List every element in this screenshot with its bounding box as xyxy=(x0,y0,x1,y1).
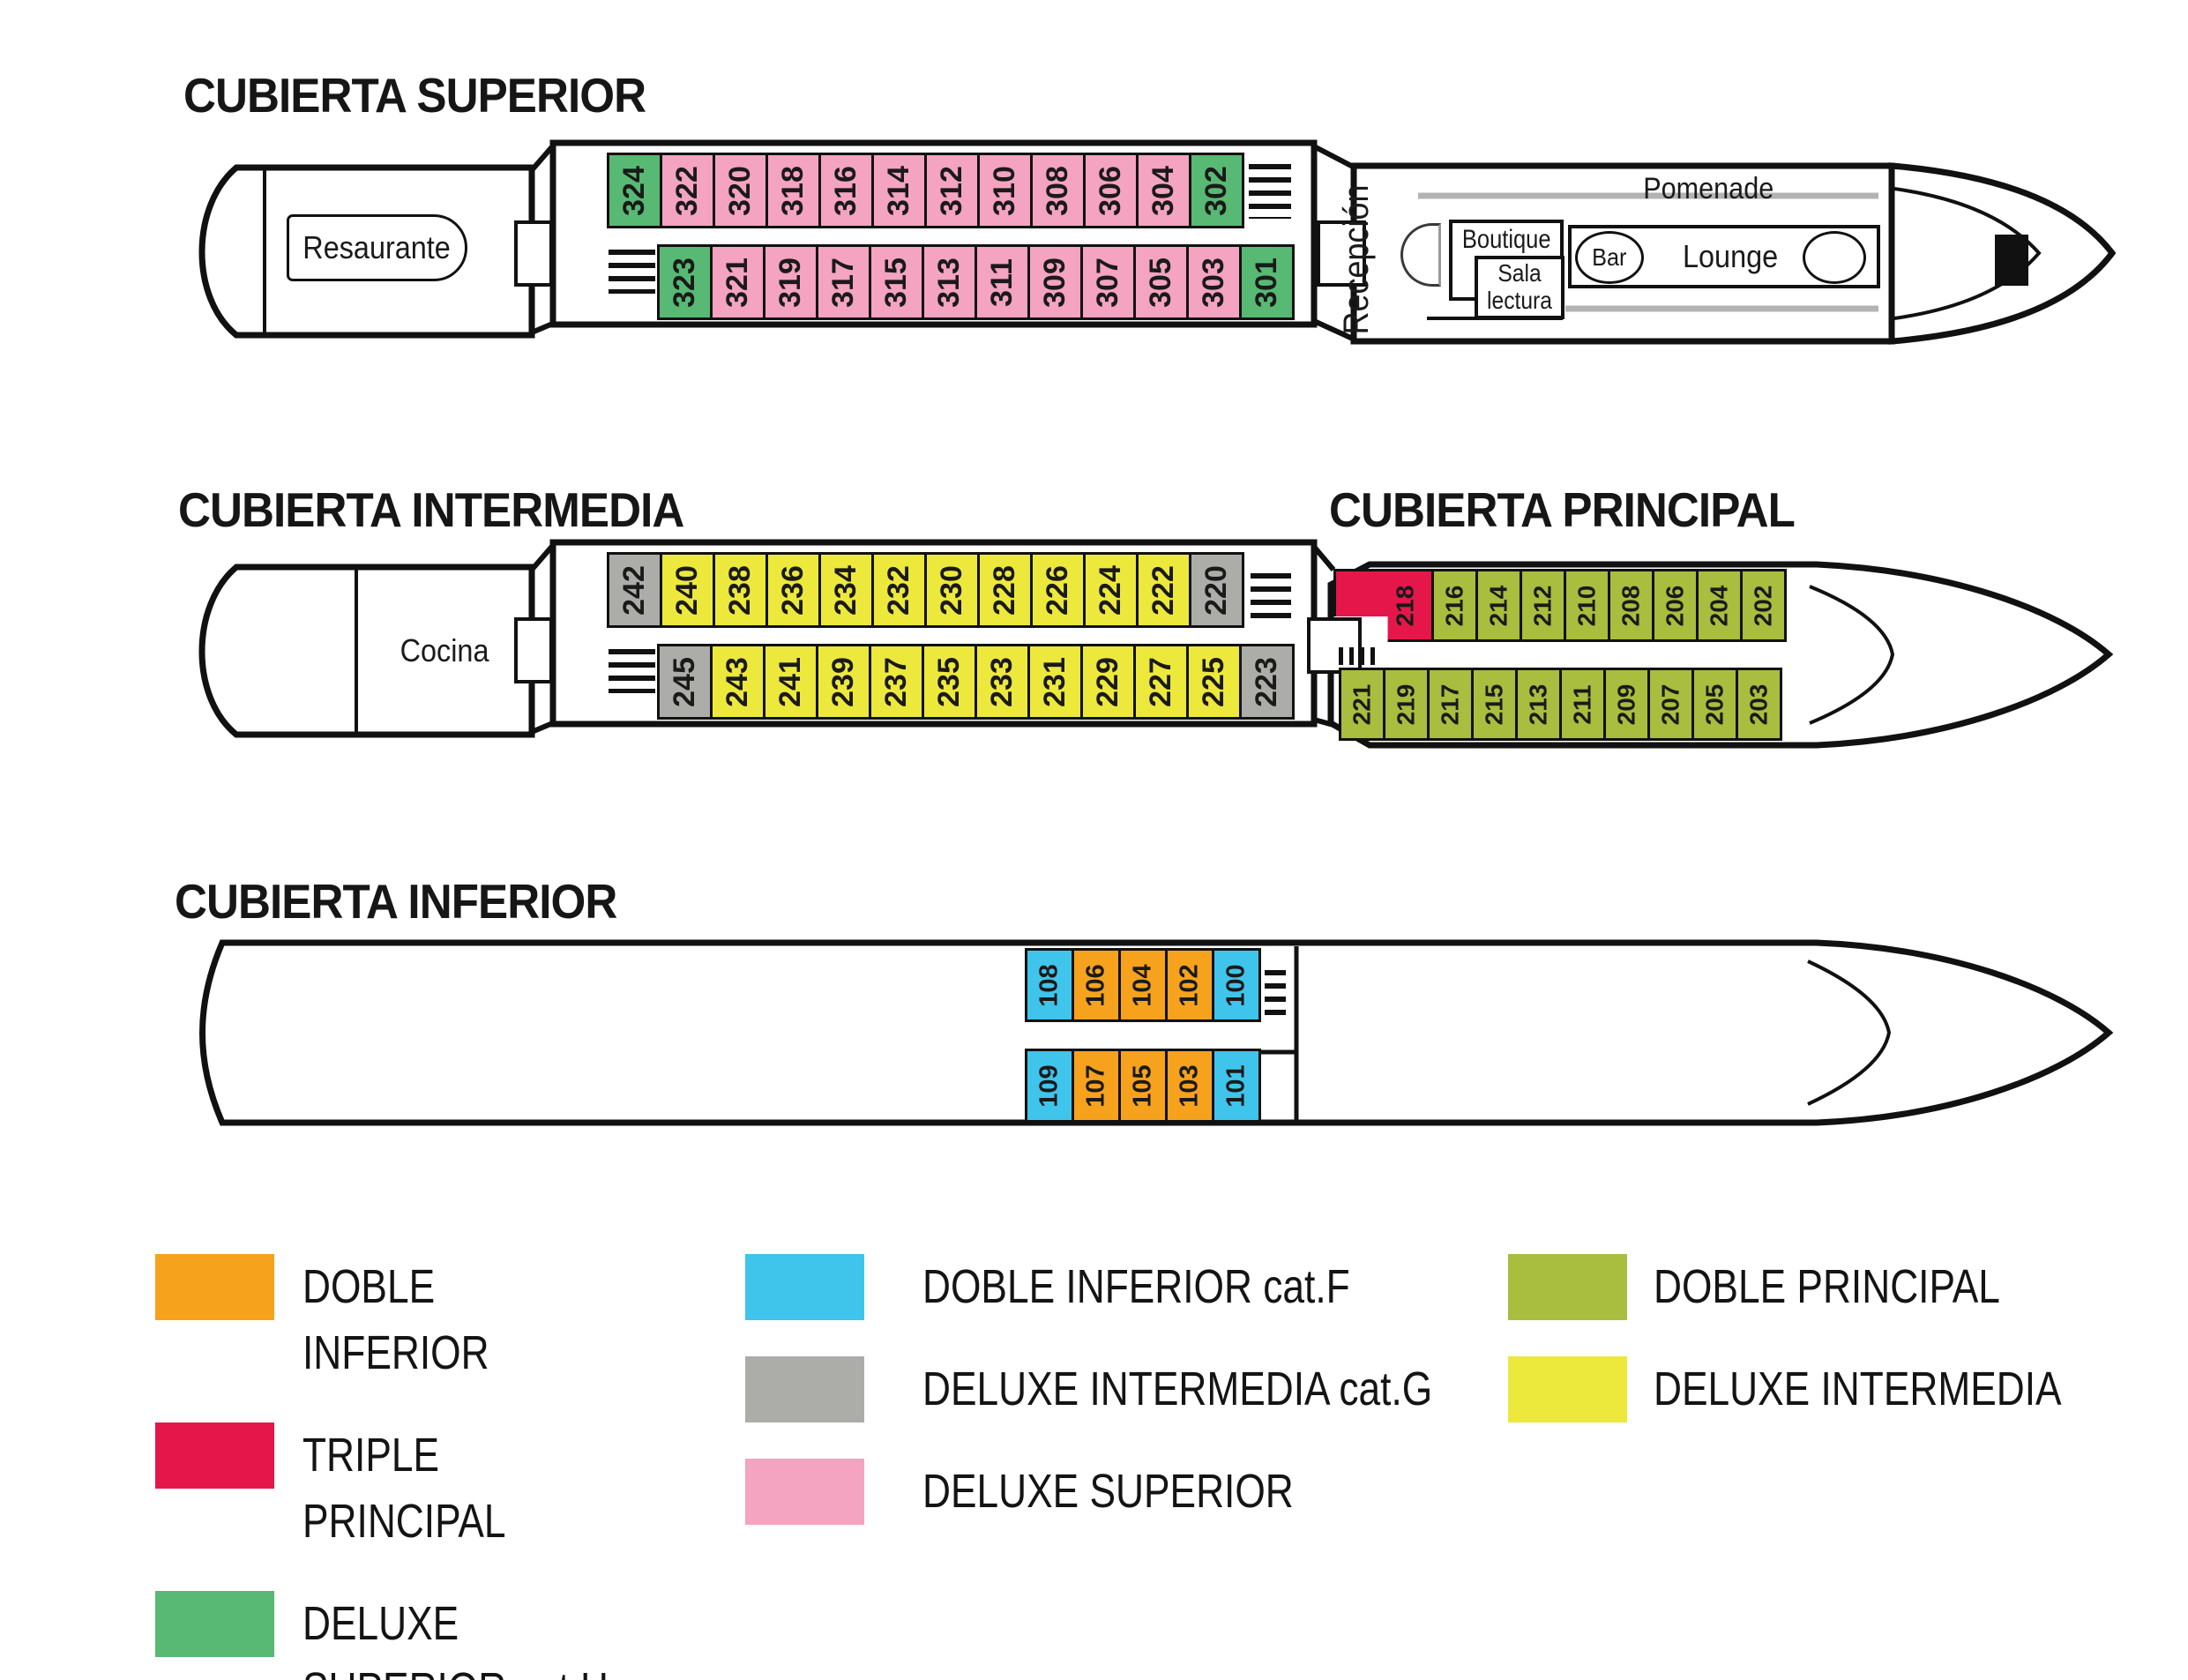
legend-label: DOBLE PRINCIPAL xyxy=(1654,1254,2000,1320)
hull-connector xyxy=(514,220,553,287)
cabin-211: 211 xyxy=(1559,668,1606,741)
legend-label: DELUXE INTERMEDIA xyxy=(1654,1356,2062,1422)
cabin-318: 318 xyxy=(765,153,821,228)
cabin-242: 242 xyxy=(607,552,662,628)
intermedia-starboard-cabin-row: 245243241239237235233231229227225223 xyxy=(657,644,1295,720)
cabin-304: 304 xyxy=(1136,153,1191,228)
reception-label: Recepción xyxy=(1337,184,1377,334)
cabin-number: 225 xyxy=(1197,657,1231,707)
principal-port-cabin-row: 218216214212210208206204202 xyxy=(1333,569,1787,642)
cabin-number: 318 xyxy=(776,166,810,216)
cabin-223: 223 xyxy=(1239,644,1295,720)
deck-intermedia-title: CUBIERTA INTERMEDIA xyxy=(178,482,683,538)
legend-column-3: DOBLE PRINCIPALDELUXE INTERMEDIA xyxy=(1508,1254,2151,1422)
cabin-102: 102 xyxy=(1165,948,1214,1022)
inferior-starboard-cabin-row: 109107105103101 xyxy=(1025,1049,1261,1123)
stairs-icon xyxy=(1251,573,1291,623)
cabin-number: 315 xyxy=(879,258,914,308)
cabin-number: 210 xyxy=(1573,585,1602,626)
cabin-number: 301 xyxy=(1250,258,1284,308)
cabin-107: 107 xyxy=(1072,1049,1121,1123)
cabin-number: 105 xyxy=(1128,1064,1157,1107)
cabin-210: 210 xyxy=(1564,569,1610,642)
cabin-number: 223 xyxy=(1250,657,1284,707)
cabin-213: 213 xyxy=(1515,668,1562,741)
cabin-317: 317 xyxy=(816,244,871,320)
cabin-number: 215 xyxy=(1481,683,1509,725)
cabin-220: 220 xyxy=(1189,552,1244,628)
lounge-area: Bar Lounge xyxy=(1568,225,1880,288)
cabin-233: 233 xyxy=(975,644,1030,720)
cabin-101: 101 xyxy=(1212,1049,1261,1123)
cabin-316: 316 xyxy=(818,153,874,228)
cabin-243: 243 xyxy=(710,644,765,720)
cabin-number: 306 xyxy=(1094,166,1128,216)
cabin-number: 217 xyxy=(1437,683,1465,725)
cabin-222: 222 xyxy=(1136,552,1191,628)
superior-starboard-cabin-row: 323321319317315313311309307305303301 xyxy=(657,244,1295,320)
cabin-number: 222 xyxy=(1146,565,1181,616)
cabin-231: 231 xyxy=(1027,644,1083,720)
cabin-number: 313 xyxy=(932,258,967,308)
bar-area: Bar xyxy=(1575,231,1644,284)
cabin-number: 234 xyxy=(829,565,863,616)
cabin-309: 309 xyxy=(1027,244,1083,320)
deck-superior-title: CUBIERTA SUPERIOR xyxy=(183,67,646,123)
cabin-number: 236 xyxy=(776,565,810,616)
cabin-number: 205 xyxy=(1701,683,1729,725)
cabin-number: 208 xyxy=(1617,585,1646,626)
cabin-number: 305 xyxy=(1144,258,1178,308)
cabin-number: 302 xyxy=(1199,166,1234,216)
cabin-238: 238 xyxy=(713,552,768,628)
cabin-number: 308 xyxy=(1041,166,1075,216)
cabin-number: 310 xyxy=(988,166,1022,216)
cabin-310: 310 xyxy=(977,153,1033,228)
cabin-number: 213 xyxy=(1525,683,1553,725)
cabin-number: 229 xyxy=(1091,657,1125,707)
kitchen-area: Cocina xyxy=(356,628,533,674)
bar-label: Bar xyxy=(1592,243,1626,272)
cabin-number: 211 xyxy=(1568,684,1596,724)
cabin-number: 202 xyxy=(1750,585,1778,626)
inferior-port-cabin-row: 108106104102100 xyxy=(1025,948,1261,1022)
doble_inferior_f-swatch xyxy=(745,1254,864,1320)
deck-inferior-title: CUBIERTA INFERIOR xyxy=(175,873,616,930)
cabin-number: 237 xyxy=(879,657,914,707)
cabin-number: 206 xyxy=(1662,585,1690,626)
cabin-number: 226 xyxy=(1041,565,1075,616)
bow-marker xyxy=(1995,235,2028,286)
legend-label: TRIPLE PRINCIPAL xyxy=(302,1422,614,1555)
deluxe_intermedia-swatch xyxy=(1508,1356,1627,1422)
cabin-106: 106 xyxy=(1072,948,1121,1022)
legend-item-doble_principal: DOBLE PRINCIPAL xyxy=(1508,1254,2151,1320)
cabin-224: 224 xyxy=(1083,552,1139,628)
cabin-108: 108 xyxy=(1025,948,1074,1022)
superior-port-cabin-row: 324322320318316314312310308306304302 xyxy=(607,153,1244,228)
legend-label: DELUXE SUPERIOR xyxy=(922,1459,1294,1525)
doble_inferior-swatch xyxy=(155,1254,274,1320)
legend-item-doble_inferior_f: DOBLE INFERIOR cat.F xyxy=(745,1254,1544,1320)
cabin-number: 219 xyxy=(1393,683,1421,725)
promenade-label: Pomenade xyxy=(1643,172,1774,206)
cabin-235: 235 xyxy=(922,644,977,720)
restaurant-area: Resaurante xyxy=(287,214,467,281)
cabin-202: 202 xyxy=(1740,569,1787,642)
cabin-number: 224 xyxy=(1094,565,1128,616)
cabin-303: 303 xyxy=(1186,244,1242,320)
cabin-number: 221 xyxy=(1348,683,1377,725)
cabin-number: 227 xyxy=(1144,657,1178,707)
cabin-number: 239 xyxy=(826,657,861,707)
cabin-number: 103 xyxy=(1175,1064,1204,1107)
cabin-311: 311 xyxy=(975,244,1030,320)
cabin-number: 207 xyxy=(1657,683,1685,725)
cabin-105: 105 xyxy=(1118,1049,1168,1123)
lounge-label-wrap: Lounge xyxy=(1660,228,1801,285)
stairs-icon xyxy=(609,250,655,294)
cabin-217: 217 xyxy=(1427,668,1474,741)
cabin-103: 103 xyxy=(1165,1049,1214,1123)
deluxe_superior_h-swatch xyxy=(155,1591,274,1657)
cabin-number: 209 xyxy=(1613,683,1641,725)
legend-column-2: DOBLE INFERIOR cat.FDELUXE INTERMEDIA ca… xyxy=(745,1254,1544,1525)
reading-room-area: Sala lectura xyxy=(1475,256,1564,319)
cabin-212: 212 xyxy=(1520,569,1566,642)
legend-item-triple_principal: TRIPLE PRINCIPAL xyxy=(155,1422,682,1555)
cabin-number: 323 xyxy=(668,258,702,308)
legend-label: DOBLE INFERIOR xyxy=(302,1254,614,1386)
deluxe_intermedia_g-swatch xyxy=(745,1356,864,1422)
cabin-236: 236 xyxy=(765,552,821,628)
cabin-number: 245 xyxy=(668,657,702,707)
cabin-321: 321 xyxy=(710,244,765,320)
cabin-237: 237 xyxy=(869,644,924,720)
cabin-204: 204 xyxy=(1696,569,1743,642)
legend-item-deluxe_superior_h: DELUXE SUPERIOR cat.H xyxy=(155,1591,682,1680)
cabin-number: 243 xyxy=(721,657,755,707)
legend-item-deluxe_intermedia_g: DELUXE INTERMEDIA cat.G xyxy=(745,1356,1544,1422)
cabin-number: 304 xyxy=(1146,166,1181,216)
cabin-100: 100 xyxy=(1212,948,1261,1022)
cabin-number: 204 xyxy=(1706,585,1734,626)
cabin-319: 319 xyxy=(763,244,818,320)
cabin-225: 225 xyxy=(1186,644,1242,720)
cabin-number: 241 xyxy=(773,657,808,707)
cabin-313: 313 xyxy=(922,244,977,320)
cabin-number: 321 xyxy=(721,258,755,308)
cabin-228: 228 xyxy=(977,552,1033,628)
cabin-number: 233 xyxy=(985,657,1019,707)
cabin-number: 235 xyxy=(932,657,967,707)
cabin-221: 221 xyxy=(1339,668,1385,741)
legend-item-doble_inferior: DOBLE INFERIOR xyxy=(155,1254,682,1386)
cabin-number: 212 xyxy=(1529,585,1557,626)
cabin-322: 322 xyxy=(660,153,715,228)
promenade-area: Pomenade xyxy=(1616,173,1801,205)
cabin-number: 242 xyxy=(617,565,652,616)
cabin-number: 317 xyxy=(826,258,861,308)
hull-connector xyxy=(514,617,553,683)
cabin-number: 232 xyxy=(882,565,916,616)
cabin-324: 324 xyxy=(607,153,662,228)
cabin-number: 228 xyxy=(988,565,1022,616)
cabin-241: 241 xyxy=(763,644,818,720)
legend-label: DELUXE INTERMEDIA cat.G xyxy=(922,1356,1432,1422)
cabin-number: 108 xyxy=(1034,964,1064,1006)
cabin-314: 314 xyxy=(871,153,927,228)
cabin-number: 230 xyxy=(935,565,969,616)
legend-column-1: DOBLE INFERIORTRIPLE PRINCIPALDELUXE SUP… xyxy=(155,1254,682,1680)
cabin-219: 219 xyxy=(1383,668,1430,741)
cabin-230: 230 xyxy=(924,552,980,628)
cabin-number: 320 xyxy=(723,166,758,216)
kitchen-label: Cocina xyxy=(400,632,489,669)
cabin-number: 309 xyxy=(1038,258,1072,308)
cabin-227: 227 xyxy=(1133,644,1189,720)
cabin-320: 320 xyxy=(713,153,768,228)
cabin-214: 214 xyxy=(1475,569,1522,642)
cabin-305: 305 xyxy=(1133,244,1189,320)
cabin-315: 315 xyxy=(869,244,924,320)
cabin-229: 229 xyxy=(1080,644,1136,720)
cabin-number: 218 xyxy=(1391,585,1419,626)
cabin-109: 109 xyxy=(1025,1049,1074,1123)
cabin-323: 323 xyxy=(657,244,713,320)
cabin-number: 106 xyxy=(1081,964,1110,1006)
cabin-312: 312 xyxy=(924,153,980,228)
cabin-307: 307 xyxy=(1080,244,1136,320)
legend-item-deluxe_intermedia: DELUXE INTERMEDIA xyxy=(1508,1356,2151,1422)
doble_principal-swatch xyxy=(1508,1254,1627,1320)
reading-room-label: Sala lectura xyxy=(1483,260,1557,315)
reception-area: Recepción xyxy=(1328,183,1385,335)
deck-principal-title: CUBIERTA PRINCIPAL xyxy=(1329,482,1795,538)
cabin-308: 308 xyxy=(1030,153,1086,228)
restaurant-label: Resaurante xyxy=(303,229,452,266)
cabin-209: 209 xyxy=(1603,668,1650,741)
cabin-number: 203 xyxy=(1745,683,1774,725)
cabin-number: 104 xyxy=(1128,964,1157,1006)
cabin-240: 240 xyxy=(660,552,715,628)
cabin-number: 307 xyxy=(1091,258,1125,308)
cabin-number: 231 xyxy=(1038,657,1072,707)
legend-label: DELUXE SUPERIOR cat.H xyxy=(302,1591,614,1680)
stairs-icon xyxy=(609,649,655,693)
cabin-number: 312 xyxy=(935,166,969,216)
cabin-number: 102 xyxy=(1175,964,1204,1006)
cabin-number: 101 xyxy=(1221,1064,1251,1107)
intermedia-port-cabin-row: 242240238236234232230228226224222220 xyxy=(607,552,1244,628)
cabin-239: 239 xyxy=(816,644,871,720)
stairs-icon xyxy=(1249,164,1291,219)
cabin-216: 216 xyxy=(1431,569,1478,642)
cabin-number: 100 xyxy=(1221,964,1251,1006)
cabin-number: 314 xyxy=(882,166,916,216)
principal-starboard-cabin-row: 221219217215213211209207205203 xyxy=(1339,668,1782,741)
ship-deck-plan: CUBIERTA SUPERIOR CUBIERTA INTERMEDIA CU… xyxy=(0,0,2188,1680)
cabin-226: 226 xyxy=(1030,552,1086,628)
cabin-302: 302 xyxy=(1189,153,1244,228)
cabin-number: 240 xyxy=(670,565,705,616)
stairs-icon xyxy=(1265,970,1286,1016)
cabin-number: 303 xyxy=(1197,258,1231,308)
cabin-number: 238 xyxy=(723,565,758,616)
cabin-number: 319 xyxy=(773,258,808,308)
cabin-number: 107 xyxy=(1081,1064,1110,1107)
cabin-number: 216 xyxy=(1441,585,1469,626)
cabin-number: 324 xyxy=(617,166,652,216)
cabin-301: 301 xyxy=(1239,244,1295,320)
legend-item-deluxe_superior: DELUXE SUPERIOR xyxy=(745,1459,1544,1525)
cabin-232: 232 xyxy=(871,552,927,628)
cabin-208: 208 xyxy=(1608,569,1654,642)
cabin-306: 306 xyxy=(1083,153,1139,228)
lounge-label: Lounge xyxy=(1683,238,1778,275)
stairs-icon xyxy=(1339,647,1378,665)
cabin-206: 206 xyxy=(1652,569,1699,642)
cabin-number: 316 xyxy=(829,166,863,216)
cabin-207: 207 xyxy=(1647,668,1694,741)
deluxe_superior-swatch xyxy=(745,1459,864,1525)
cabin-number: 214 xyxy=(1485,585,1513,626)
legend-label: DOBLE INFERIOR cat.F xyxy=(922,1254,1350,1320)
cabin-245: 245 xyxy=(657,644,713,720)
cabin-205: 205 xyxy=(1691,668,1738,741)
cabin-234: 234 xyxy=(818,552,874,628)
cabin-203: 203 xyxy=(1736,668,1782,741)
cabin-218: 218 xyxy=(1333,569,1434,642)
cabin-215: 215 xyxy=(1471,668,1518,741)
cabin-number: 322 xyxy=(670,166,705,216)
cabin-104: 104 xyxy=(1118,948,1168,1022)
cabin-number: 311 xyxy=(985,258,1019,307)
cabin-number: 109 xyxy=(1034,1064,1064,1107)
cabin-number: 220 xyxy=(1199,565,1234,616)
lounge-table xyxy=(1803,231,1866,284)
triple_principal-swatch xyxy=(155,1422,274,1489)
